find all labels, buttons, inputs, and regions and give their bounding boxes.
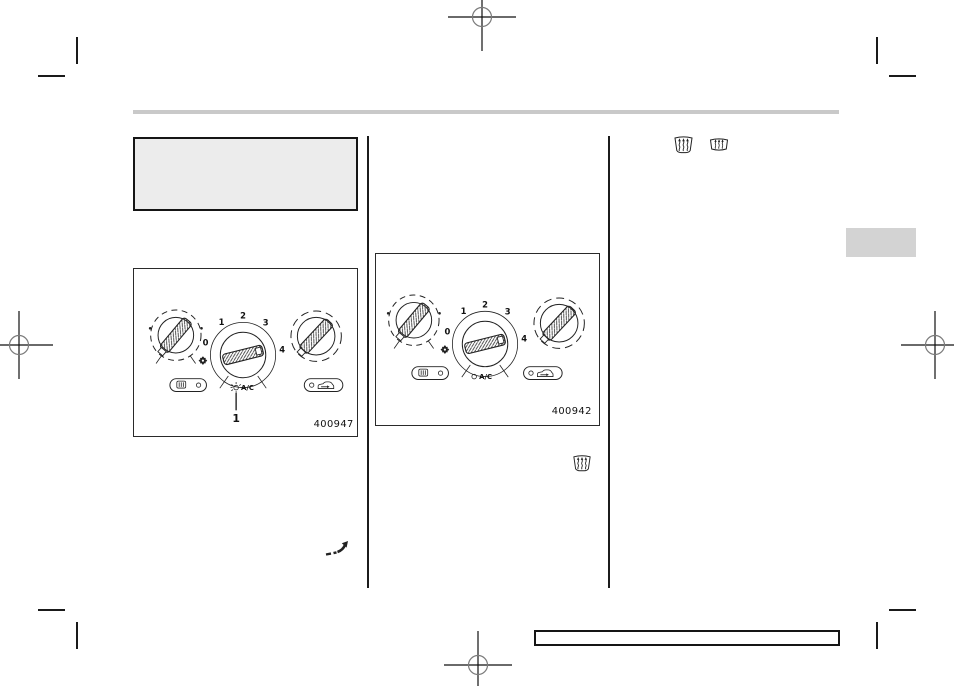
chapter-tab [846, 228, 916, 257]
fan-speed-label-2: 2 [482, 299, 488, 309]
front-defroster-icon [571, 452, 593, 475]
temperature-dial [387, 295, 441, 348]
fan-speed-label-4: 4 [521, 333, 527, 343]
fan-speed-label-3: 3 [505, 306, 511, 316]
indicator-lamp [438, 371, 442, 375]
figure-climate-panel-ac-2: 0 1 2 3 4 A/C [375, 253, 600, 426]
registration-mark-top [448, 0, 516, 51]
rear-defogger-icon [708, 136, 730, 154]
crop-mark-bottom-right-h [889, 609, 916, 611]
recirculation-button [304, 379, 343, 392]
crop-mark-bottom-left-h [38, 609, 65, 611]
figure-code: 400942 [552, 406, 592, 417]
airflow-mode-dial [291, 311, 341, 361]
rear-defogger-icon [177, 381, 186, 388]
rear-defogger-button [412, 367, 449, 380]
crop-mark-top-right-h [889, 75, 916, 77]
fan-speed-dial: 0 1 2 3 4 [199, 310, 285, 425]
crop-mark-top-left-h [38, 75, 65, 77]
fan-speed-label-0: 0 [203, 338, 209, 348]
registration-mark-left [0, 311, 53, 379]
manual-page: 0 1 2 3 4 [0, 0, 954, 686]
crop-mark-bottom-left-v [76, 622, 78, 649]
airflow-mode-dial [534, 298, 584, 348]
fan-speed-label-0: 0 [445, 327, 451, 337]
temperature-dial [149, 310, 203, 363]
indicator-lamp [310, 383, 314, 387]
ac-label: A/C [241, 384, 254, 392]
fan-icon [441, 345, 449, 353]
rear-defogger-icon [419, 369, 428, 376]
header-rule [133, 110, 839, 114]
indicator-lamp [196, 383, 200, 387]
fan-speed-dial: 0 1 2 3 4 A/C [441, 299, 528, 381]
heading-box [133, 137, 358, 211]
fan-speed-label-2: 2 [240, 310, 246, 320]
crop-mark-top-right-v [876, 37, 878, 64]
rear-defogger-button [170, 379, 207, 392]
crop-mark-top-left-v [76, 37, 78, 64]
recirculation-button [524, 367, 563, 380]
registration-mark-bottom [444, 631, 512, 686]
front-defroster-icon [672, 135, 695, 155]
ac-label: A/C [479, 373, 492, 381]
airflow-icon [324, 539, 350, 559]
registration-mark-right [901, 311, 954, 379]
fan-speed-label-1: 1 [219, 317, 225, 327]
indicator-lamp [529, 371, 533, 375]
figure-code: 400947 [314, 419, 354, 430]
footer-box [534, 630, 840, 646]
recirculation-car-icon [318, 382, 334, 389]
fan-speed-label-1: 1 [461, 306, 467, 316]
column-divider-1 [367, 136, 369, 588]
fan-speed-label-3: 3 [263, 318, 269, 328]
climate-panel-drawing-2: 0 1 2 3 4 A/C [376, 254, 599, 425]
fan-speed-label-4: 4 [279, 344, 285, 354]
figure-climate-panel-ac: 0 1 2 3 4 [133, 268, 358, 437]
callout-number: 1 [232, 412, 240, 425]
climate-panel-drawing-1: 0 1 2 3 4 [134, 269, 357, 436]
recirculation-car-icon [537, 370, 553, 377]
fan-icon [199, 356, 207, 364]
crop-mark-bottom-right-v [876, 622, 878, 649]
column-divider-2 [608, 136, 610, 588]
